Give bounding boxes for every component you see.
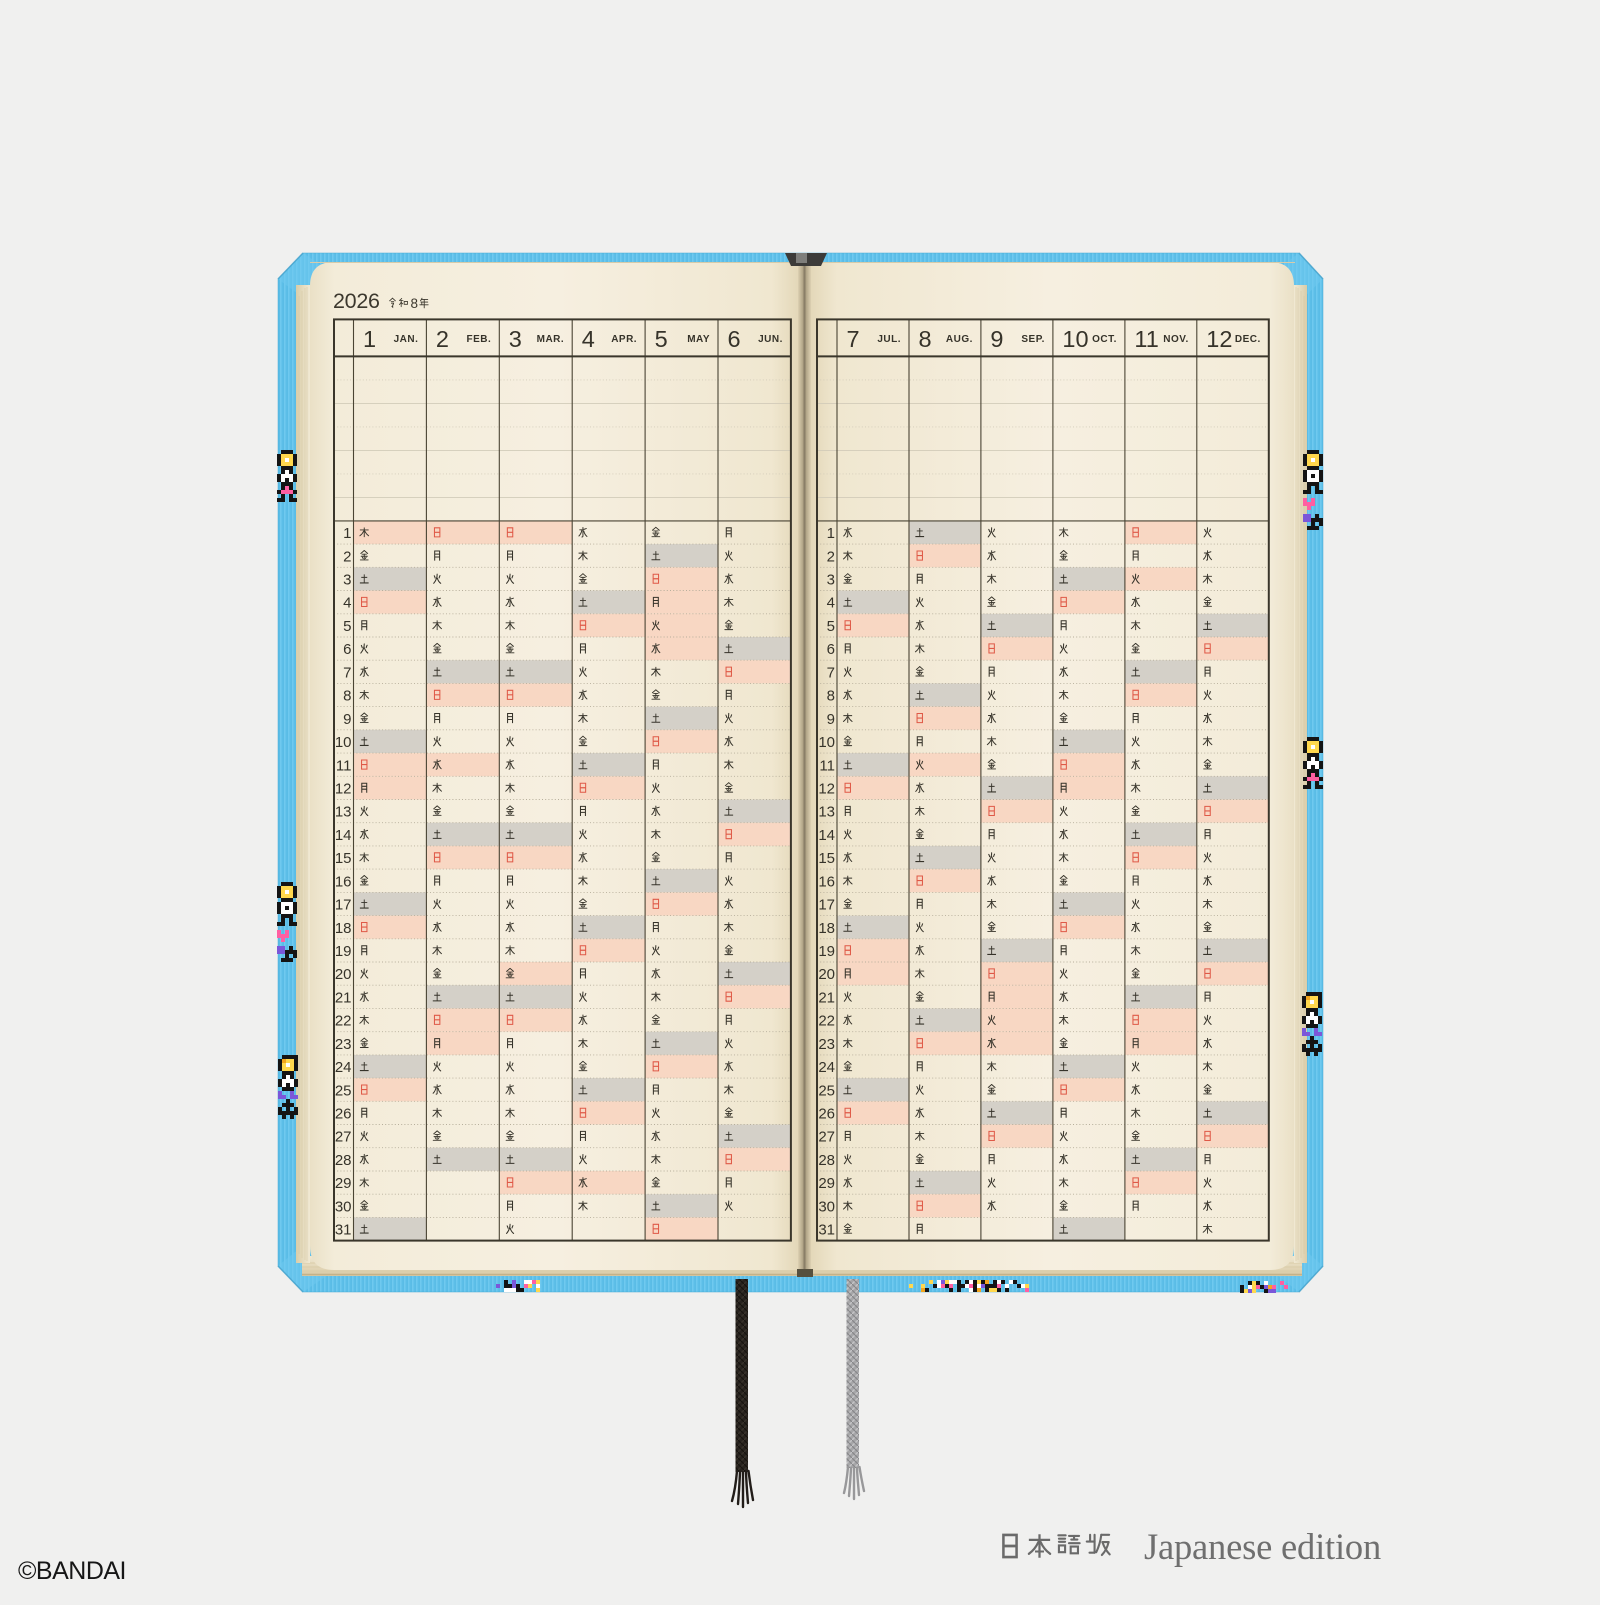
svg-text:1: 1 [827,525,835,542]
svg-text:15: 15 [818,850,835,867]
svg-text:14: 14 [818,827,835,844]
svg-text:DEC.: DEC. [1235,334,1261,345]
svg-text:13: 13 [335,804,352,821]
svg-text:12: 12 [818,781,835,798]
svg-text:AUG.: AUG. [946,334,973,345]
svg-text:©BANDAI: ©BANDAI [18,1557,126,1585]
svg-text:4: 4 [827,595,835,612]
svg-text:7: 7 [343,664,351,681]
svg-text:10: 10 [818,734,835,751]
svg-text:26: 26 [335,1106,352,1123]
svg-text:27: 27 [818,1129,835,1146]
svg-text:3: 3 [509,326,522,352]
svg-text:12: 12 [335,781,352,798]
svg-text:9: 9 [990,326,1003,352]
svg-text:11: 11 [819,757,835,774]
svg-text:8: 8 [919,326,932,352]
svg-text:FEB.: FEB. [467,334,492,345]
svg-text:4: 4 [582,326,595,352]
svg-text:10: 10 [1062,326,1088,352]
svg-text:10: 10 [335,734,352,751]
svg-text:26: 26 [818,1106,835,1123]
svg-text:23: 23 [818,1036,835,1053]
svg-text:8: 8 [411,296,419,311]
svg-text:1: 1 [363,326,376,352]
svg-text:29: 29 [818,1175,835,1192]
svg-text:22: 22 [335,1013,352,1030]
svg-text:20: 20 [818,966,835,983]
svg-text:28: 28 [335,1152,352,1169]
svg-text:16: 16 [818,873,835,890]
svg-text:19: 19 [818,943,835,960]
svg-text:31: 31 [818,1222,835,1239]
svg-text:17: 17 [335,897,352,914]
svg-text:JUN.: JUN. [758,334,783,345]
svg-text:8: 8 [343,688,351,705]
svg-text:7: 7 [827,664,835,681]
svg-text:28: 28 [818,1152,835,1169]
svg-text:27: 27 [335,1129,352,1146]
svg-text:13: 13 [818,804,835,821]
svg-text:12: 12 [1206,326,1232,352]
svg-text:MAY: MAY [687,334,710,345]
svg-text:9: 9 [827,711,835,728]
svg-text:APR.: APR. [611,334,637,345]
svg-text:14: 14 [335,827,352,844]
svg-text:22: 22 [818,1013,835,1030]
svg-text:16: 16 [335,873,352,890]
svg-text:30: 30 [335,1198,352,1215]
svg-text:15: 15 [335,850,352,867]
svg-text:24: 24 [818,1059,835,1076]
svg-text:JAN.: JAN. [394,334,419,345]
svg-text:24: 24 [335,1059,352,1076]
svg-text:23: 23 [335,1036,352,1053]
svg-text:30: 30 [818,1198,835,1215]
svg-text:OCT.: OCT. [1092,334,1117,345]
svg-text:21: 21 [818,989,835,1006]
svg-text:2: 2 [436,326,449,352]
svg-text:25: 25 [818,1082,835,1099]
svg-text:4: 4 [343,595,351,612]
svg-text:NOV.: NOV. [1163,334,1189,345]
svg-text:1: 1 [343,525,351,542]
svg-text:31: 31 [335,1222,352,1239]
svg-text:7: 7 [847,326,860,352]
svg-text:6: 6 [728,326,741,352]
svg-text:5: 5 [655,326,668,352]
svg-text:20: 20 [335,966,352,983]
svg-text:5: 5 [343,618,351,635]
svg-text:6: 6 [827,641,835,658]
svg-text:19: 19 [335,943,352,960]
svg-text:11: 11 [336,757,352,774]
svg-text:Japanese edition: Japanese edition [1144,1526,1381,1567]
svg-text:6: 6 [343,641,351,658]
svg-text:11: 11 [1134,326,1158,352]
svg-text:18: 18 [818,920,835,937]
svg-text:5: 5 [827,618,835,635]
svg-text:3: 3 [343,572,351,589]
svg-text:25: 25 [335,1082,352,1099]
svg-text:JUL.: JUL. [877,334,901,345]
svg-text:2: 2 [343,548,351,565]
svg-text:2026: 2026 [333,289,380,313]
svg-text:9: 9 [343,711,351,728]
svg-text:17: 17 [818,897,835,914]
svg-text:MAR.: MAR. [537,334,565,345]
svg-text:SEP.: SEP. [1021,334,1045,345]
svg-text:8: 8 [827,688,835,705]
svg-text:2: 2 [827,548,835,565]
svg-text:29: 29 [335,1175,352,1192]
svg-text:18: 18 [335,920,352,937]
svg-text:3: 3 [827,572,835,589]
svg-text:21: 21 [335,989,352,1006]
